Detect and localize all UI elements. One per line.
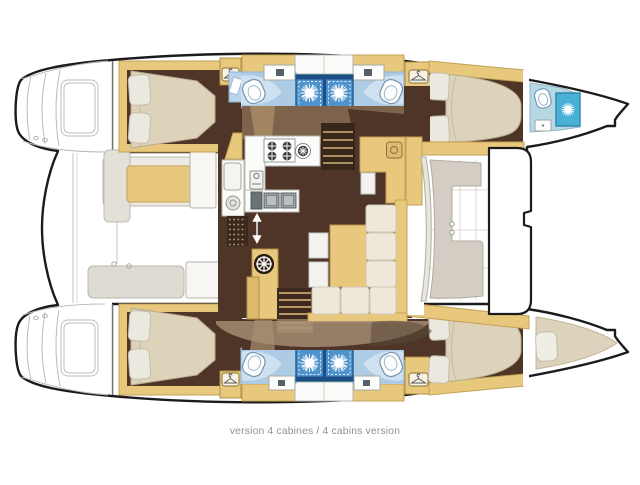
svg-text:version 4 cabines / 4 cabins v: version 4 cabines / 4 cabins version <box>230 426 400 437</box>
